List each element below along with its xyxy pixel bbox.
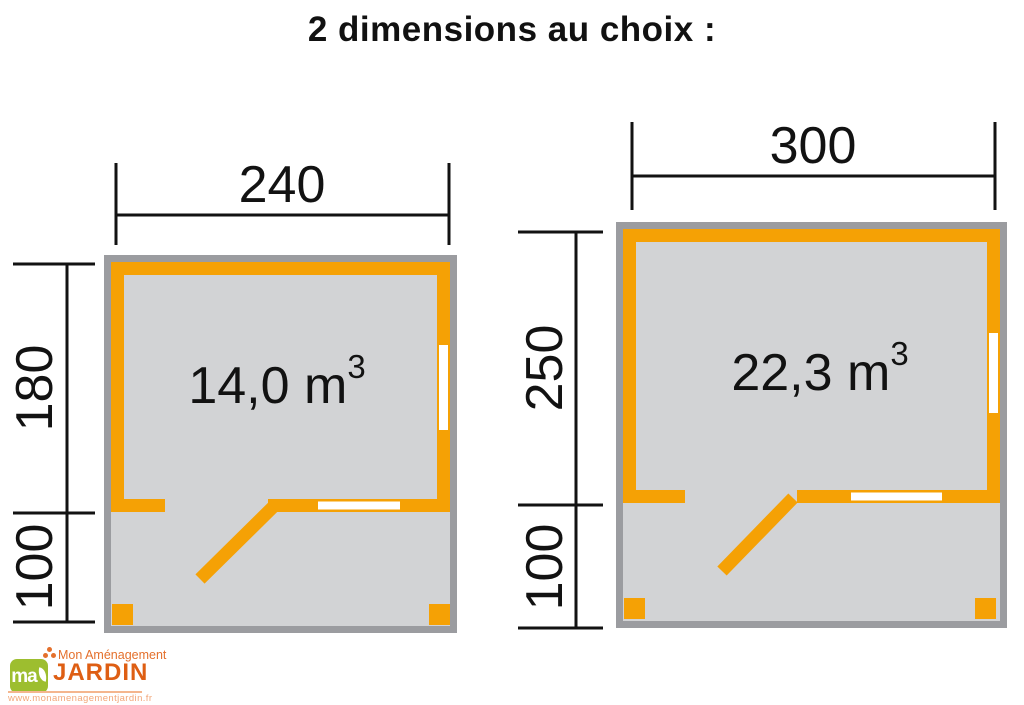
- brand-logo: ma Mon Aménagement JARDIN www.monamenage…: [8, 646, 158, 704]
- wall-top: [111, 262, 450, 275]
- volume-label: 14,0 m3: [188, 348, 365, 415]
- dim-depth-label: 180: [6, 345, 64, 432]
- wall-top: [623, 229, 1000, 242]
- window-front-glass: [851, 493, 942, 501]
- wall-bottom-right: [945, 490, 1000, 503]
- dim-porch-label: 100: [516, 524, 574, 611]
- porch-post-right: [975, 598, 996, 619]
- window-front-glass: [318, 502, 400, 510]
- floor-plan-small: 240 180 100 14,0 m3: [6, 156, 457, 633]
- brand-name-main: JARDIN: [53, 659, 148, 687]
- volume-label: 22,3 m3: [731, 335, 908, 402]
- floor-plan-large: 300 250 100 22,3 m3: [516, 117, 1007, 628]
- wall-bottom-left: [623, 490, 685, 503]
- logo-monogram: ma: [10, 659, 48, 693]
- shed-floor: [111, 262, 450, 626]
- brand-website: www.monamenagementjardin.fr: [8, 693, 152, 704]
- clover-icon: [42, 647, 56, 659]
- wall-bottom-hinge: [797, 490, 848, 503]
- wall-left: [111, 262, 124, 512]
- dim-width-label: 300: [770, 117, 857, 175]
- wall-left: [623, 229, 636, 503]
- dim-porch-label: 100: [6, 524, 64, 611]
- window-side-glass: [439, 345, 448, 430]
- dim-width-label: 240: [239, 156, 326, 214]
- leaf-icon: [37, 667, 48, 681]
- dim-depth-label: 250: [516, 325, 574, 412]
- window-side-glass: [989, 333, 998, 413]
- floor-plans: 240 180 100 14,0 m3 300: [0, 0, 1024, 705]
- wall-bottom-right: [403, 499, 450, 512]
- porch-post-right: [429, 604, 450, 625]
- wall-bottom-left: [111, 499, 165, 512]
- shed-floor: [623, 229, 1000, 621]
- logo-monogram-text: ma: [11, 667, 36, 686]
- porch-post-left: [624, 598, 645, 619]
- porch-post-left: [112, 604, 133, 625]
